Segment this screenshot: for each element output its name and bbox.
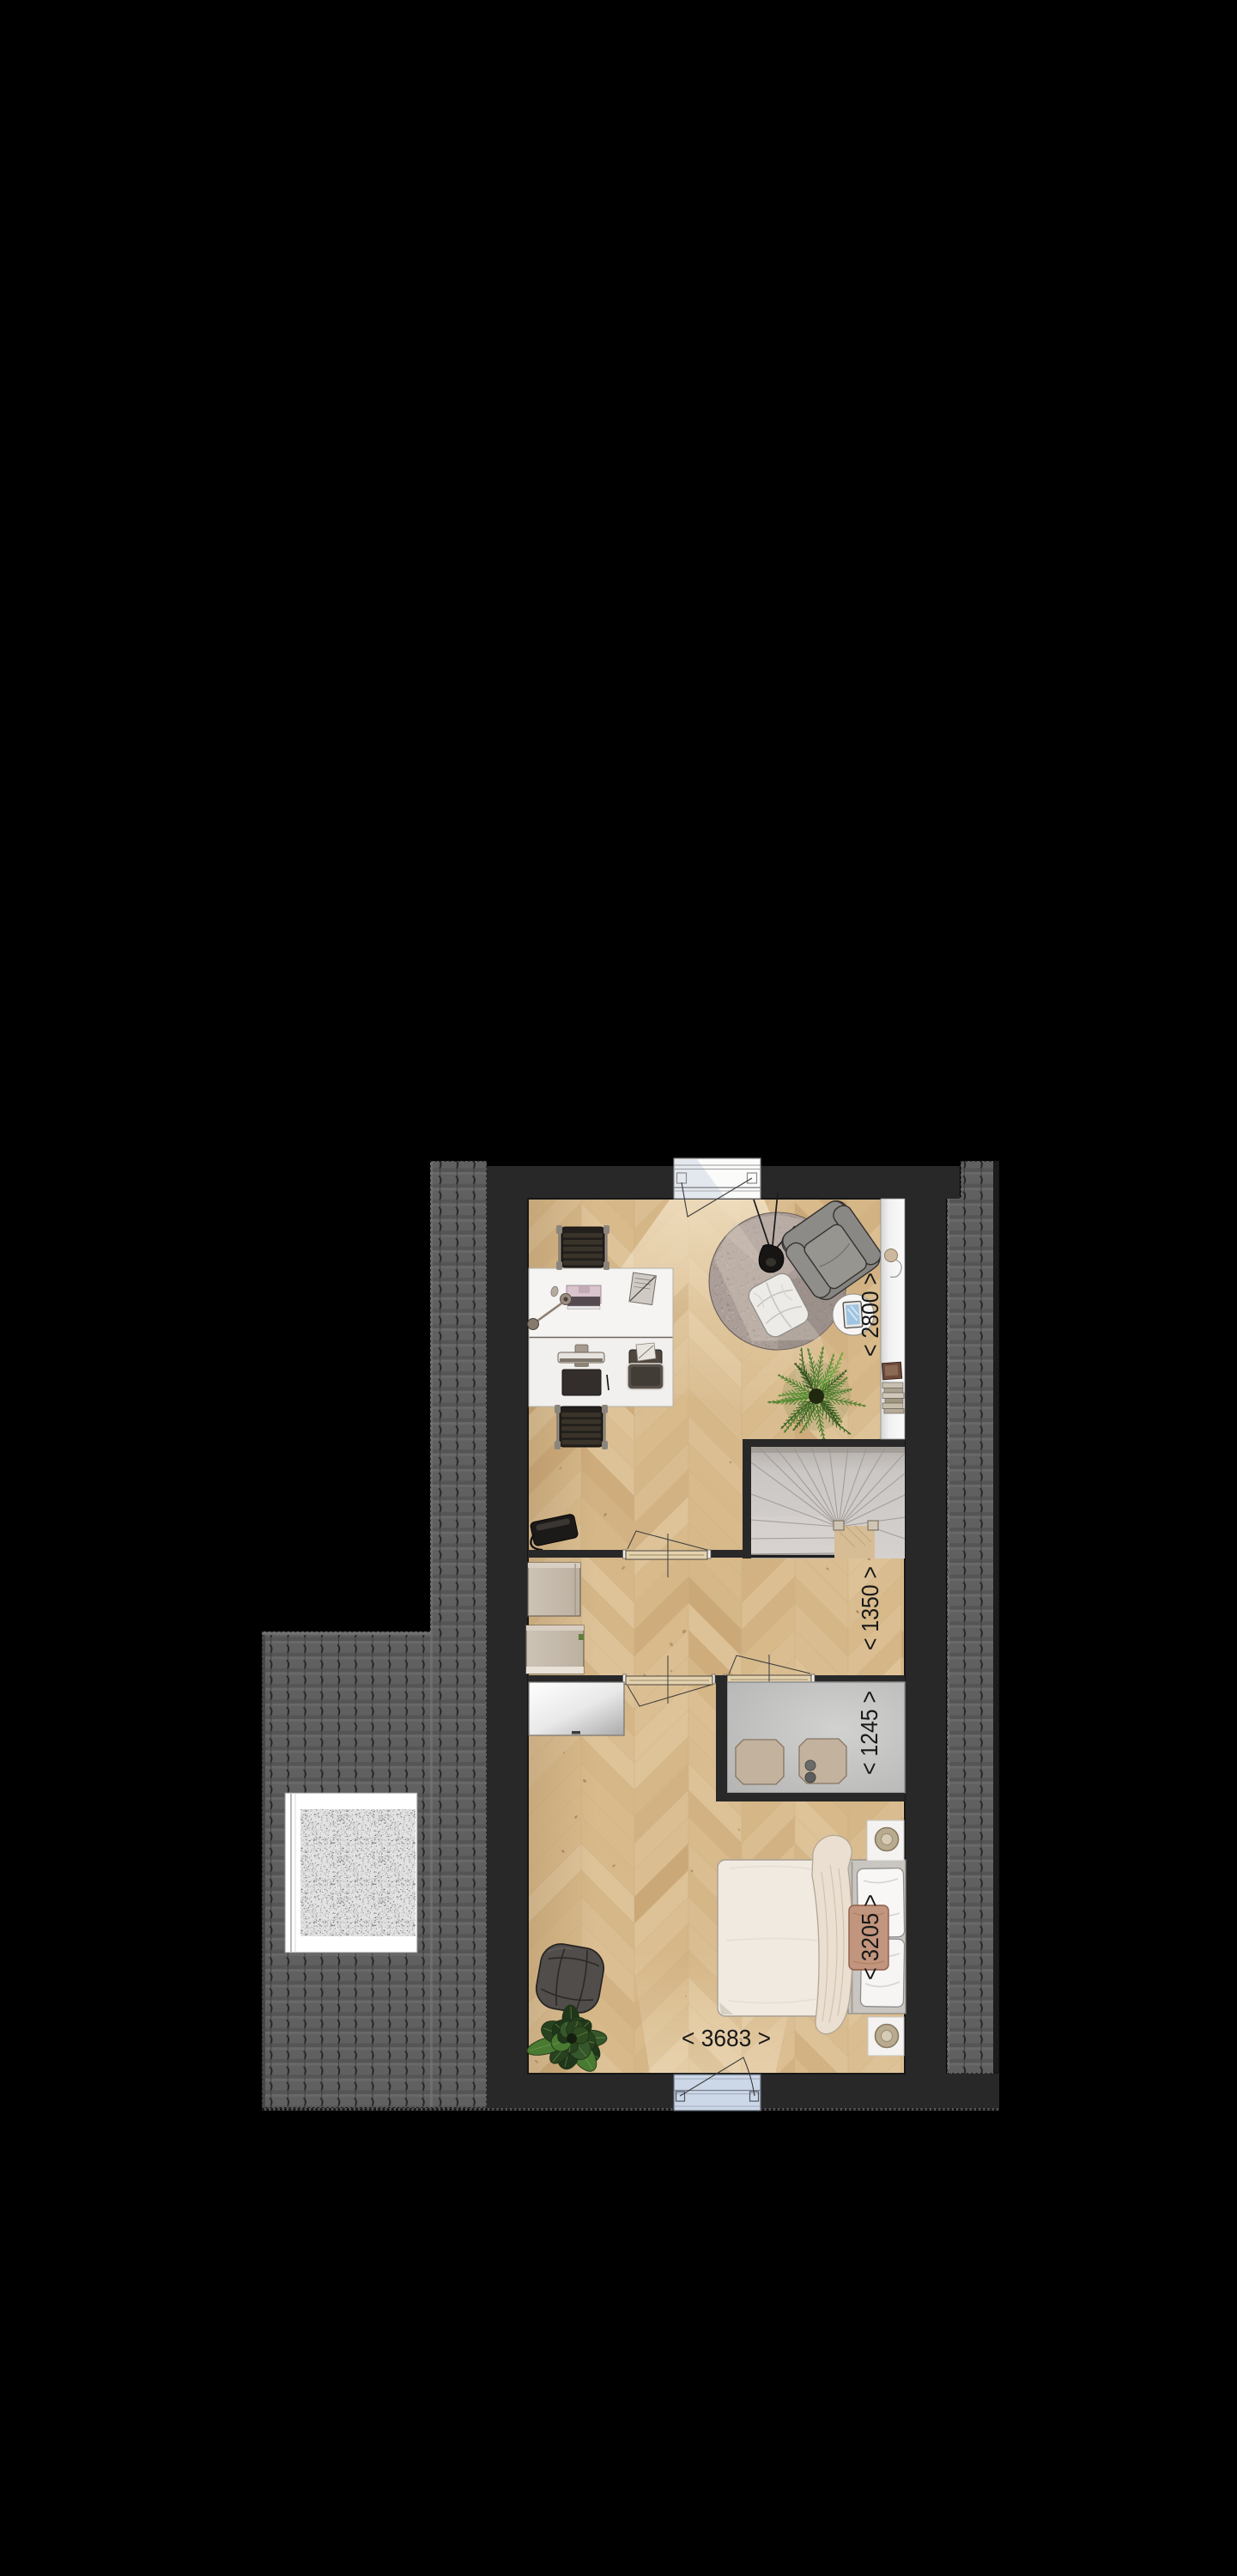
svg-text:< 3205 >: < 3205 > xyxy=(857,1894,883,1980)
svg-text:< 1350 >: < 1350 > xyxy=(857,1566,883,1650)
svg-text:< 2800 >: < 2800 > xyxy=(857,1273,883,1357)
svg-text:< 1245 >: < 1245 > xyxy=(856,1691,882,1775)
svg-text:< 3683 >: < 3683 > xyxy=(682,2025,771,2051)
